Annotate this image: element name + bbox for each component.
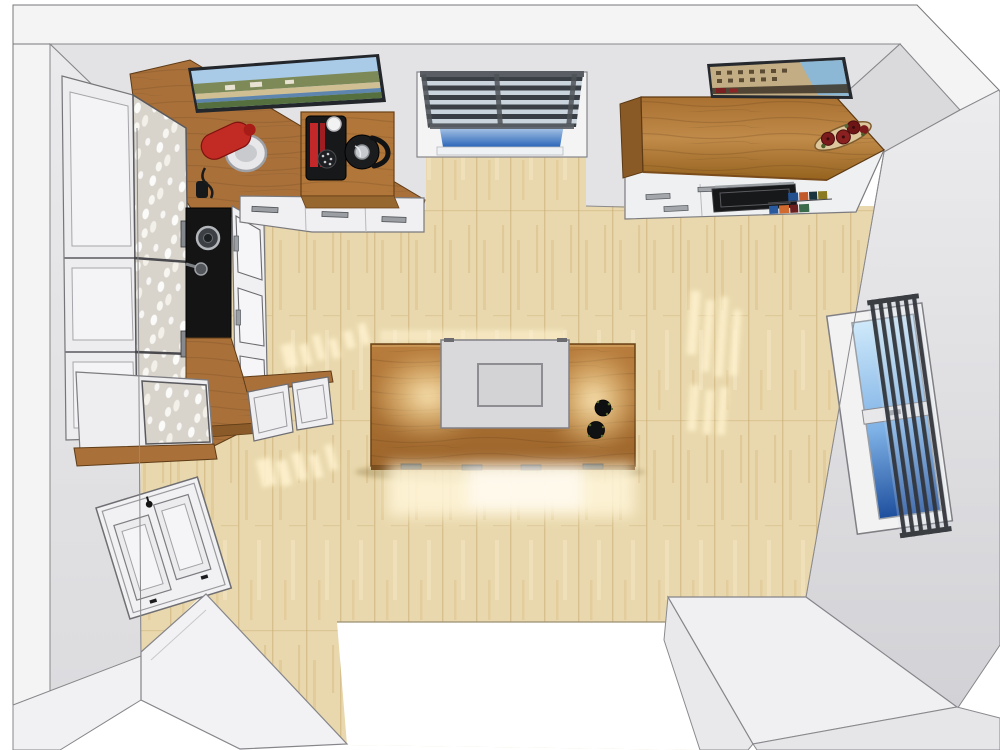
beans-cup	[318, 150, 336, 168]
kitchen-island[interactable]	[355, 338, 645, 483]
wall-cut-left-band	[13, 44, 50, 738]
wall-art-colosseum[interactable]	[707, 57, 853, 99]
cabinet-handle[interactable]	[181, 221, 186, 247]
coffee-machine[interactable]	[306, 116, 346, 180]
cabinet-handle[interactable]	[236, 310, 241, 325]
right-cabinet-run[interactable]	[620, 97, 884, 219]
cabinet-handle[interactable]	[181, 331, 186, 357]
cabinet-handle[interactable]	[234, 236, 239, 251]
blind-headrail	[420, 71, 584, 77]
end-display-cabinet[interactable]	[74, 372, 217, 466]
extractor-hood[interactable]	[441, 338, 569, 428]
sunlight-patch-south	[388, 464, 634, 516]
faucet-knob	[195, 263, 207, 275]
kitchen-scene	[0, 0, 1000, 750]
window-top[interactable]	[417, 71, 587, 157]
wood-canopy[interactable]	[620, 97, 884, 180]
kitchen-render-canvas	[0, 0, 1000, 750]
